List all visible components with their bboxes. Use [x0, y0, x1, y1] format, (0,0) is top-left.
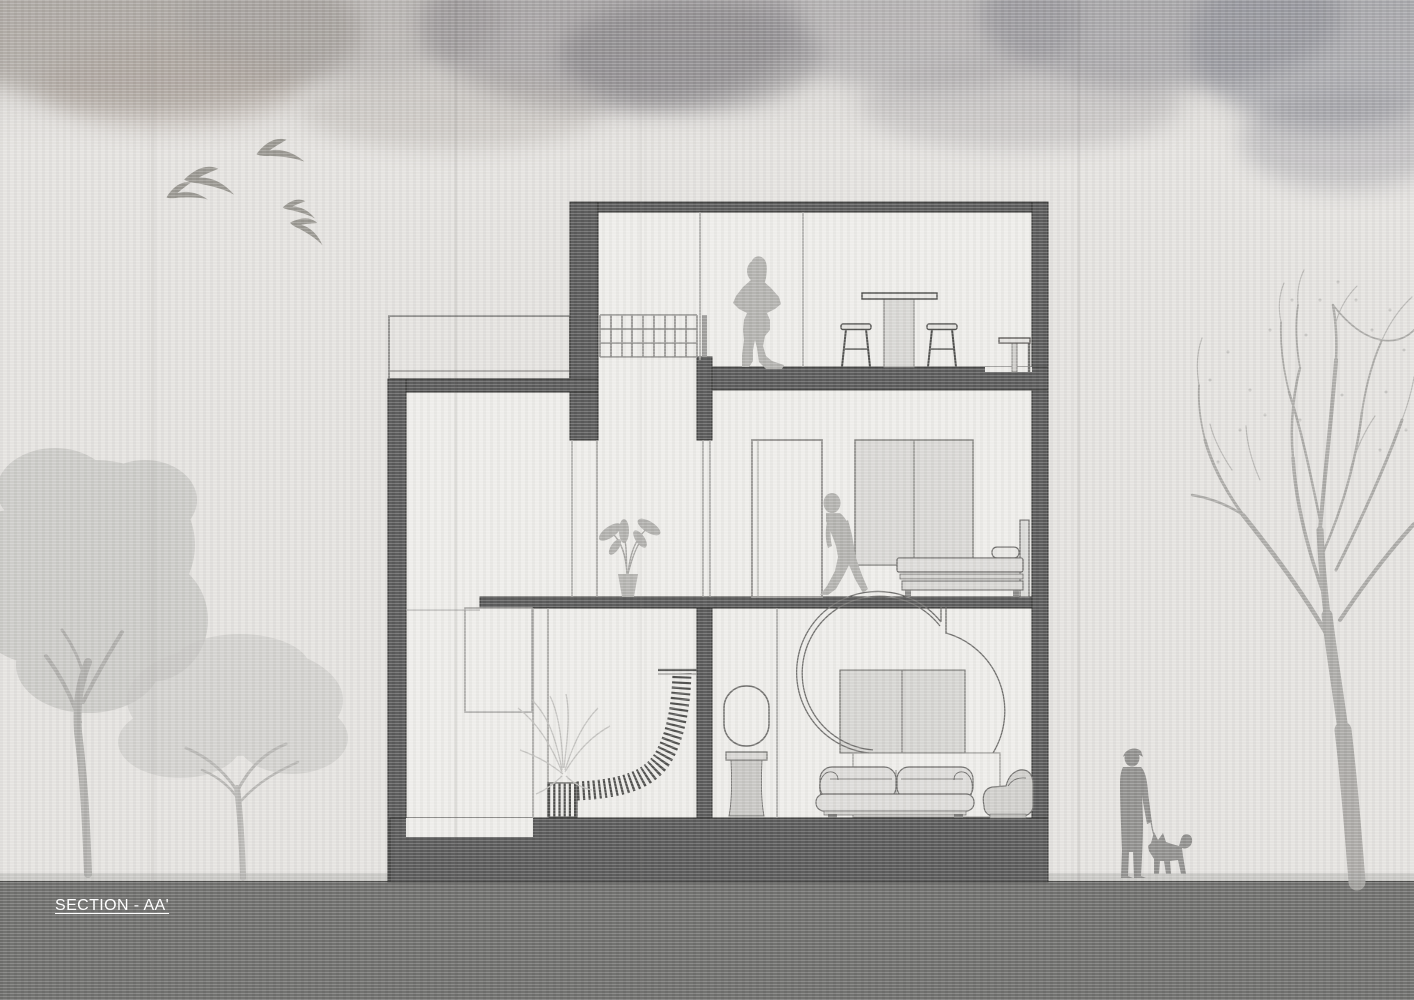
- section-drawing-sheet: SECTION - AA': [0, 0, 1414, 1000]
- bird-icon: [287, 212, 330, 245]
- terrace-parapet: [389, 316, 570, 379]
- pedestal-basin: [726, 752, 767, 816]
- section-artwork: [0, 0, 1414, 1000]
- bird-icon: [256, 137, 305, 165]
- right-wall: [1032, 202, 1048, 882]
- annex-room: [406, 392, 570, 837]
- upper-left-wall: [570, 202, 598, 440]
- tree-buds: [1209, 281, 1408, 464]
- cabinet: [840, 670, 965, 753]
- sofa: [816, 767, 974, 818]
- building-section: [388, 202, 1048, 882]
- floor-step: [985, 367, 1032, 372]
- sunken-floor-notch: [406, 818, 533, 837]
- left-tree-small: [118, 634, 348, 878]
- bird-icon: [183, 165, 235, 195]
- first-floor-slab: [480, 597, 1032, 608]
- wardrobe: [855, 440, 973, 565]
- right-bare-tree: [1192, 270, 1414, 882]
- annex-upper-gap: [570, 440, 598, 597]
- annex-left-wall: [388, 379, 406, 882]
- man-walking-dog: [1120, 749, 1192, 878]
- section-title: SECTION - AA': [55, 897, 169, 915]
- stair-room-wall: [697, 608, 712, 818]
- annex-roof-slab: [388, 379, 598, 392]
- birds: [165, 137, 330, 245]
- roof-slab: [570, 202, 1048, 212]
- shelf-end-post: [702, 315, 707, 357]
- void-edge-wall-stub: [697, 357, 712, 440]
- double-height-void: [598, 367, 712, 597]
- bird-icon: [282, 198, 317, 218]
